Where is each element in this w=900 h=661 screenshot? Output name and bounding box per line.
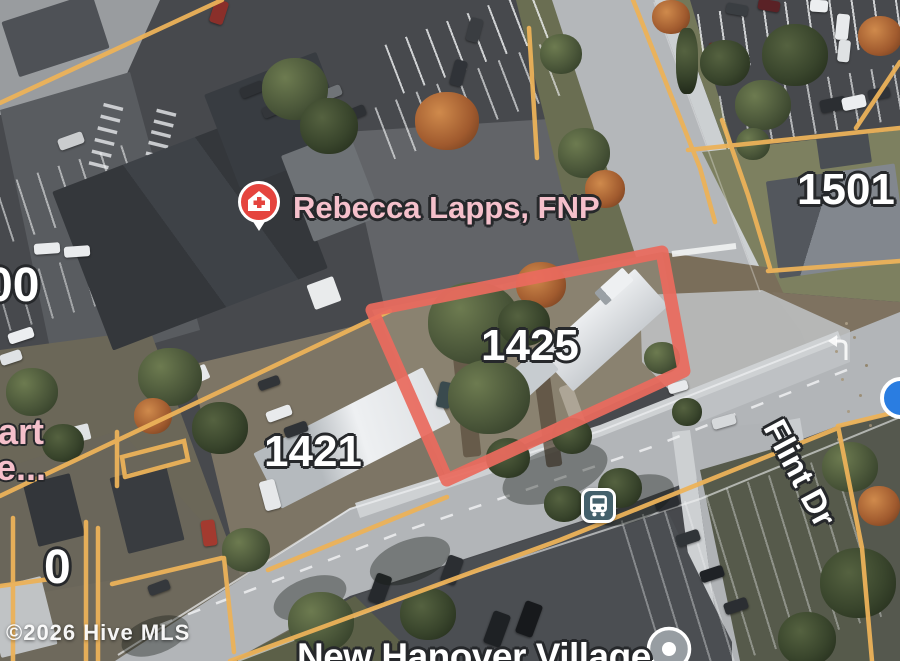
gray-place-pin-icon[interactable]: [645, 625, 693, 661]
parcel-overlay: [0, 0, 900, 661]
partial-address-label: 0: [44, 544, 71, 592]
parcel-number-1425: 1425: [481, 324, 579, 368]
partial-poi-label[interactable]: art: [0, 414, 44, 450]
parcel-number-1421: 1421: [264, 430, 362, 474]
parcel-boundary-lines: [0, 0, 900, 661]
blue-location-dot-icon[interactable]: [878, 375, 900, 421]
parcel-number-1501: 1501: [797, 168, 895, 212]
poi-label-business[interactable]: Rebecca Lapps, FNP: [293, 192, 600, 223]
mls-watermark: ©2026 Hive MLS: [6, 620, 190, 646]
poi-label-new-hanover-village[interactable]: New Hanover Village: [297, 638, 651, 661]
medical-place-pin-icon[interactable]: [236, 180, 282, 234]
satellite-map[interactable]: Rebecca Lapps, FNP 1425 1421 1501 Flint …: [0, 0, 900, 661]
partial-poi-label[interactable]: e...: [0, 450, 46, 486]
partial-address-label: 00: [0, 262, 39, 310]
bus-stop-icon[interactable]: [581, 488, 616, 523]
